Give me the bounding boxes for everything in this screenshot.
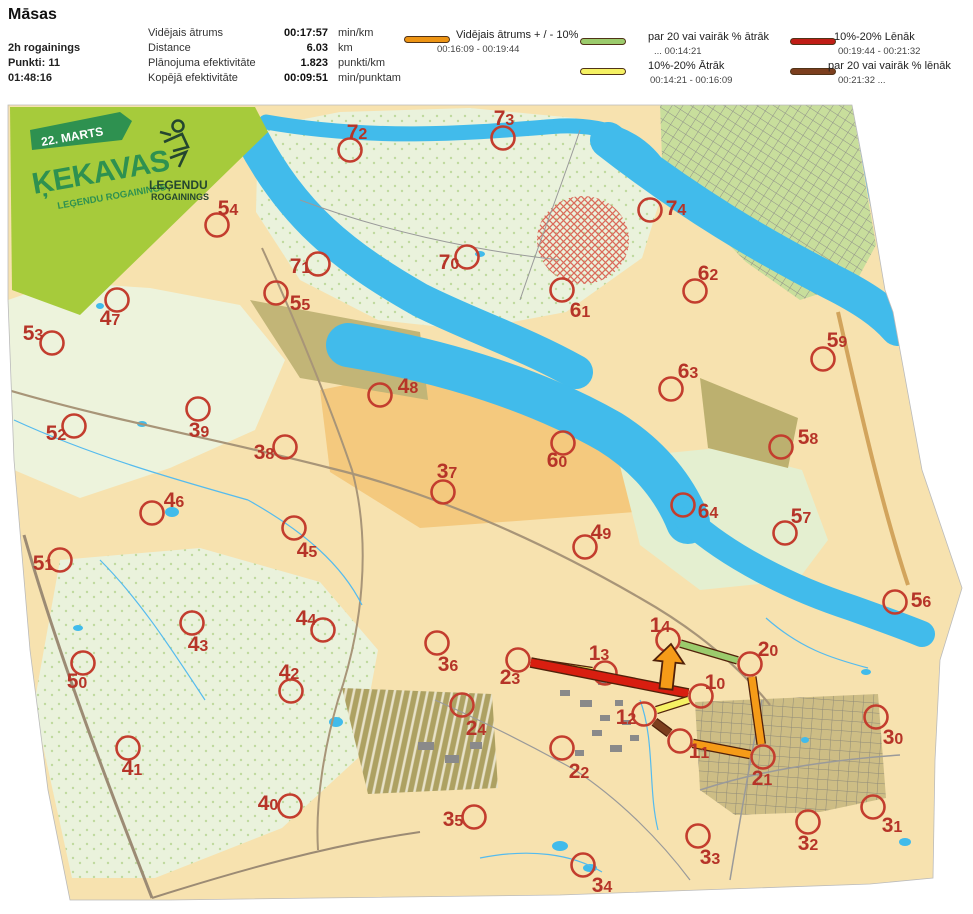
lake (899, 838, 911, 846)
lake (542, 125, 554, 131)
region-residential-se (695, 694, 886, 815)
lake (73, 625, 83, 631)
building (580, 700, 592, 707)
map-canvas: 22. MARTSĶEKAVASLEĢENDU ROGAININGSLEĢEND… (0, 105, 973, 909)
building (575, 750, 584, 756)
building (592, 730, 602, 736)
building (445, 755, 459, 763)
route-map: 22. MARTSĶEKAVASLEĢENDU ROGAININGSLEĢEND… (0, 0, 973, 909)
building (418, 742, 434, 750)
building (560, 690, 570, 696)
map-container: 22. MARTSĶEKAVASLEĢENDU ROGAININGSLEĢEND… (0, 0, 973, 909)
building (630, 735, 639, 741)
rogaining-analysis-page: { "header": { "title": "Māsas", "event":… (0, 0, 973, 909)
logo-text-1: LEĢENDU (149, 178, 208, 192)
out-of-bounds-area (537, 196, 629, 284)
logo-text-2: ROGAININGS (151, 192, 209, 202)
building (600, 715, 610, 721)
lake (801, 737, 809, 743)
lake (861, 669, 871, 675)
building (470, 742, 482, 749)
building (610, 745, 622, 752)
lake (552, 841, 568, 851)
